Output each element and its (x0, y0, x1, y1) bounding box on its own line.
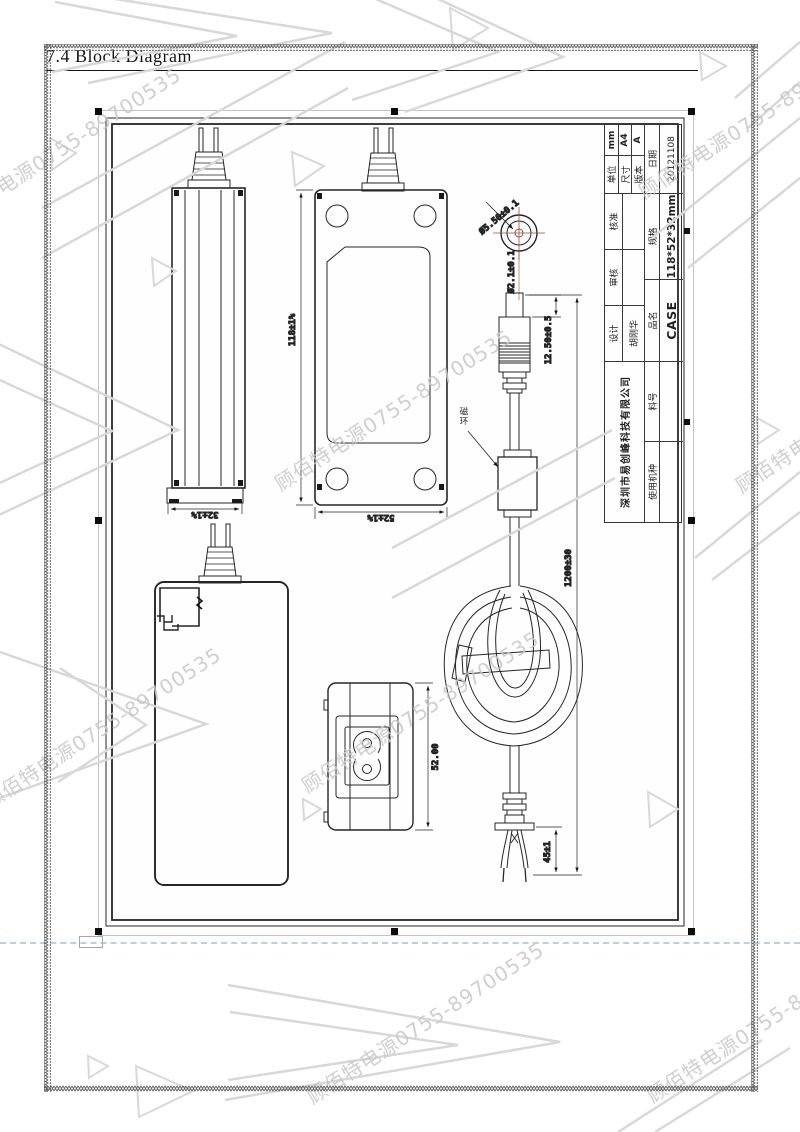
ferrite-bead-label: 磁环 (457, 407, 469, 426)
approve-value (622, 194, 644, 250)
selection-handle-top-right[interactable] (688, 108, 695, 115)
spec-value: 118*52*32mm (659, 194, 683, 280)
watermark-text: 顾佰特电源0755-89700535 (640, 933, 800, 1109)
dim-cable-length: 1200±30 (564, 549, 574, 587)
version-value: A (631, 125, 644, 156)
company-name: 深圳市易创峰科技有限公司 (605, 362, 644, 522)
dim-case-depth: 32±1% (191, 509, 219, 519)
unit-value: mm (605, 125, 618, 156)
inlet-end-view (324, 683, 433, 830)
selection-handle-bottom-left[interactable] (95, 928, 102, 935)
watermark-text: 顾佰特电源0755-89700535 (300, 934, 549, 1110)
dim-plug-tip-length: 12.50±0.5 (544, 316, 554, 365)
review-label: 审核 (605, 250, 622, 306)
model-label: 使用机种 (644, 442, 659, 522)
title-block: 深圳市易创峰科技有限公司 设计 胡刚华 审核 核准 单位 mm 尺寸 A4 版本… (604, 124, 682, 523)
resize-tab[interactable] (79, 936, 103, 948)
model-value (659, 442, 683, 522)
design-label: 设计 (605, 306, 622, 362)
dim-plug-outer-dia: Ø5.50±0.1 (476, 198, 521, 238)
selection-handle-middle-right[interactable] (688, 517, 695, 524)
watermark-text: 顾佰特电源0755-89700535 (729, 323, 800, 499)
spec-label: 规格 (644, 194, 659, 280)
dim-wire-split-length: 45±1 (543, 841, 553, 863)
dim-case-width: 52±1% (367, 512, 395, 522)
product-label: 品名 (644, 280, 659, 362)
date-value: 20121108 (659, 125, 683, 194)
product-value: CASE (659, 280, 683, 362)
selection-handle-bottom-right[interactable] (688, 928, 695, 935)
review-value (622, 250, 644, 306)
text-boundary-guide (0, 942, 800, 944)
selection-handle-middle-left[interactable] (95, 517, 102, 524)
frame-mark (684, 228, 690, 234)
engineering-drawing: 32±1% 118±1% 52±1% (98, 110, 692, 934)
size-value: A4 (618, 125, 631, 156)
unit-label: 单位 (605, 156, 618, 194)
selection-handle-bottom-middle[interactable] (391, 928, 398, 935)
date-label: 日期 (644, 125, 659, 194)
ferrite-bead (468, 431, 537, 586)
dim-plug-pin-dia: Ø2.1±0.1 (506, 250, 517, 294)
dim-inlet-height: 52.00 (431, 743, 441, 770)
selection-handle-top-middle[interactable] (391, 108, 398, 115)
title-underline (46, 70, 698, 71)
design-value: 胡刚华 (622, 306, 644, 362)
section-title: 7.4 Block Diagram (46, 46, 192, 67)
size-label: 尺寸 (618, 156, 631, 194)
case-plain-view (155, 524, 288, 885)
version-label: 版本 (631, 156, 644, 194)
frame-mark (684, 419, 690, 425)
dim-case-height: 118±1% (288, 313, 298, 346)
case-front-view (296, 128, 447, 519)
selection-handle-top-left[interactable] (95, 108, 102, 115)
approve-label: 核准 (605, 194, 622, 250)
part-number-label: 料号 (644, 362, 659, 442)
cable-coil (444, 586, 582, 793)
part-number-value (659, 362, 683, 442)
case-side-view (167, 128, 245, 514)
